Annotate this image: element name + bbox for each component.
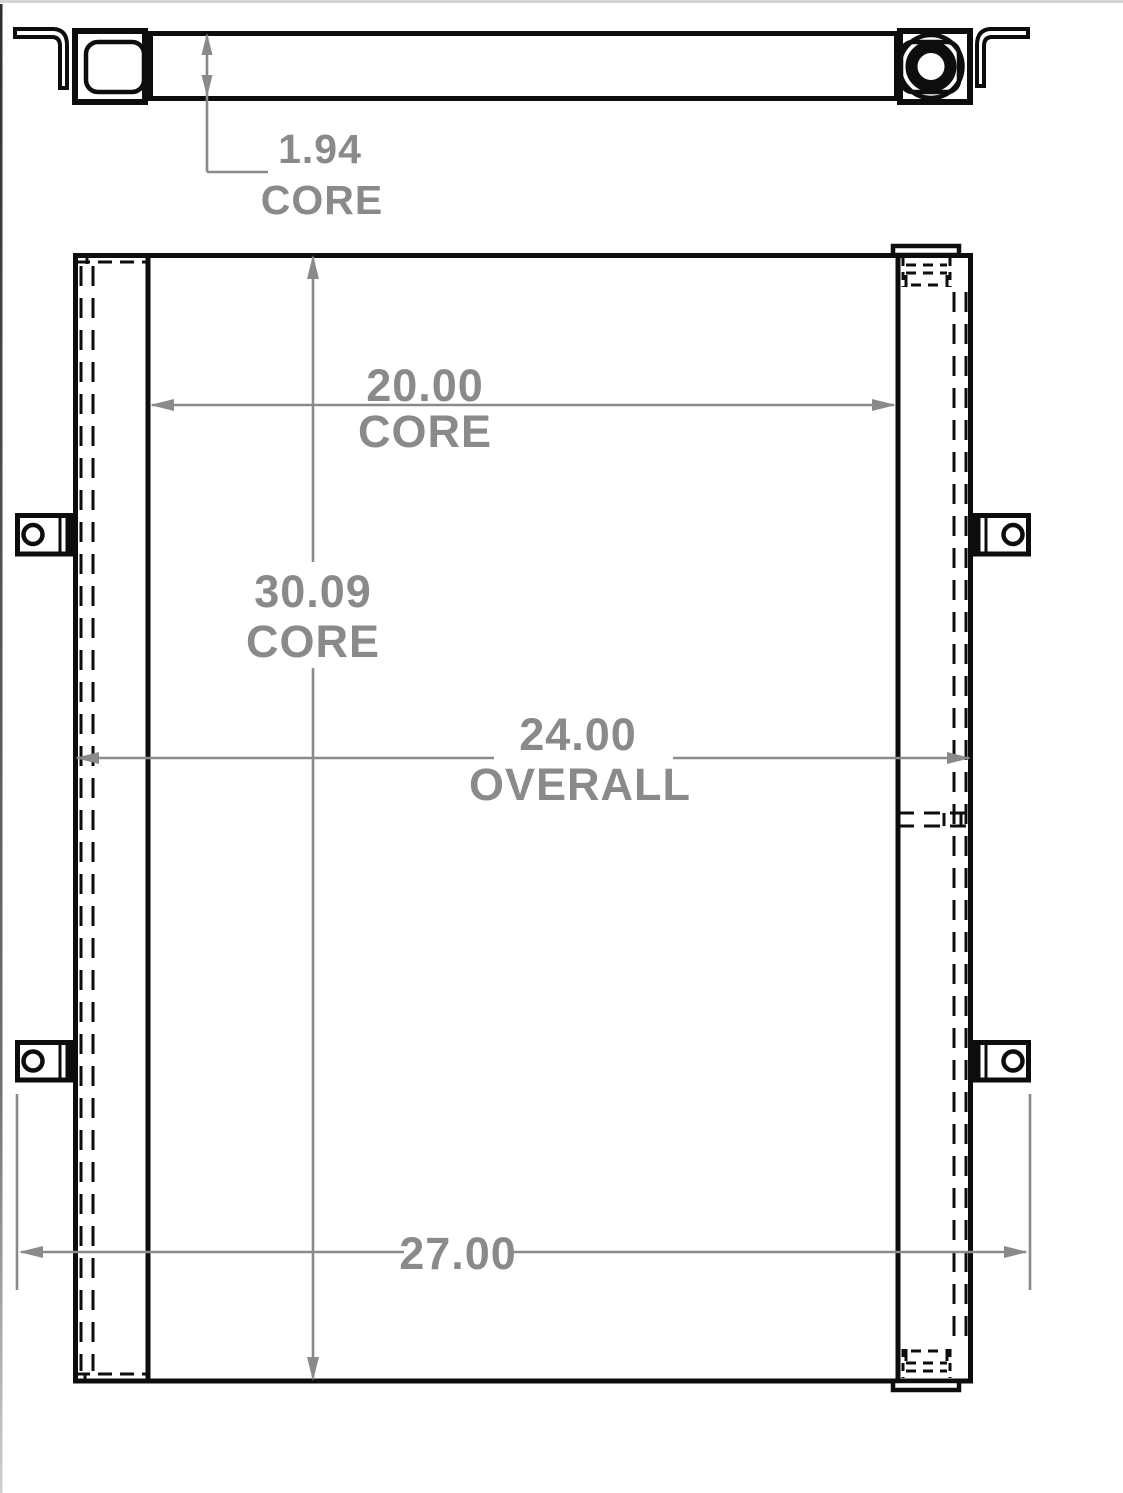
dim-core-depth-value: 1.94 — [278, 126, 362, 172]
mounting-tab-right-bottom — [976, 1042, 1029, 1080]
top-view-core — [151, 34, 897, 99]
bottom-port-flange — [893, 1381, 959, 1390]
mounting-tab-right-top — [976, 515, 1029, 554]
mounting-tab-left-bottom — [18, 1042, 71, 1080]
dim-core-width-label: CORE — [358, 406, 492, 457]
top-border-line — [0, 0, 1123, 3]
dim-core-height-value: 30.09 — [254, 566, 372, 617]
dim-core-depth-label: CORE — [261, 177, 383, 223]
dim-overall-width-value: 24.00 — [519, 709, 637, 760]
drawing-page: 1.94 CORE 20.00 CORE 30.09 CORE 24.00 — [0, 0, 1123, 1493]
mounting-tab-left-top — [18, 515, 71, 554]
front-view — [18, 246, 1029, 1390]
top-view — [15, 29, 1028, 102]
dim-overall-width-label: OVERALL — [469, 759, 691, 810]
dim-core-height-label: CORE — [246, 616, 380, 667]
top-port-flange — [893, 246, 959, 255]
left-border-line — [0, 4, 3, 1493]
front-outline — [76, 256, 971, 1382]
technical-drawing: 1.94 CORE 20.00 CORE 30.09 CORE 24.00 — [0, 0, 1123, 1493]
dim-core-width-value: 20.00 — [366, 360, 484, 411]
dim-bracket-width-value: 27.00 — [399, 1228, 517, 1279]
